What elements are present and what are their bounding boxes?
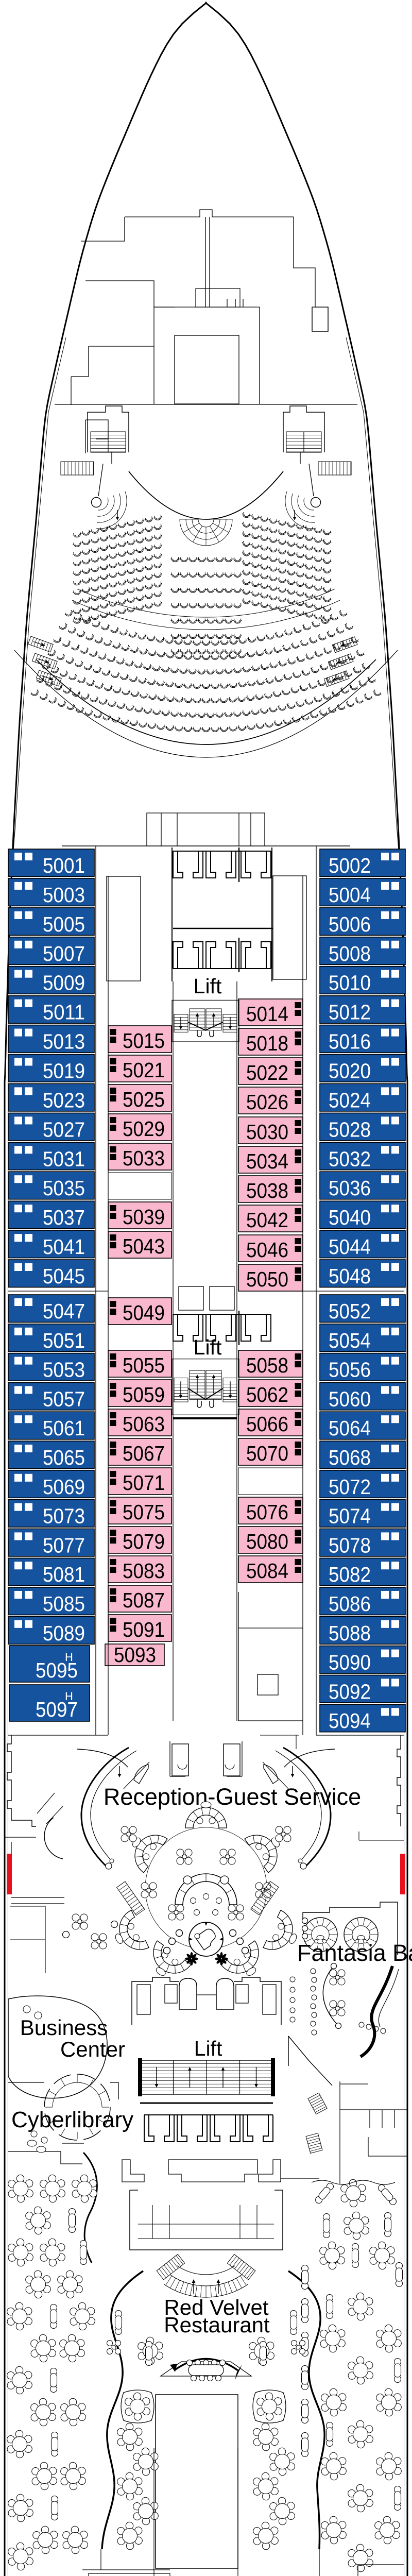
svg-text:5045: 5045 — [43, 1264, 85, 1288]
svg-text:5007: 5007 — [43, 942, 85, 965]
svg-text:5076: 5076 — [246, 1500, 288, 1524]
svg-text:Fantasia Bar: Fantasia Bar — [297, 1940, 412, 1966]
svg-text:5083: 5083 — [123, 1559, 165, 1583]
svg-text:5028: 5028 — [329, 1117, 371, 1141]
svg-text:5073: 5073 — [43, 1504, 85, 1528]
svg-text:5013: 5013 — [43, 1030, 85, 1054]
svg-text:5001: 5001 — [43, 854, 85, 877]
svg-text:5086: 5086 — [329, 1592, 371, 1616]
svg-text:5021: 5021 — [123, 1058, 165, 1082]
svg-text:5092: 5092 — [329, 1680, 371, 1703]
svg-text:5009: 5009 — [43, 971, 85, 995]
svg-text:5002: 5002 — [329, 854, 371, 877]
svg-text:5030: 5030 — [246, 1120, 288, 1144]
svg-text:5087: 5087 — [123, 1588, 165, 1612]
svg-text:Reception-Guest Service: Reception-Guest Service — [104, 1784, 361, 1810]
svg-text:5080: 5080 — [246, 1530, 288, 1553]
svg-text:5050: 5050 — [246, 1267, 288, 1291]
svg-text:5089: 5089 — [43, 1621, 85, 1645]
svg-text:5078: 5078 — [329, 1533, 371, 1557]
svg-text:5025: 5025 — [123, 1088, 165, 1111]
svg-text:5056: 5056 — [329, 1358, 371, 1382]
svg-text:5003: 5003 — [43, 883, 85, 907]
svg-text:5042: 5042 — [246, 1208, 288, 1232]
svg-text:5051: 5051 — [43, 1329, 85, 1352]
svg-text:5058: 5058 — [246, 1353, 288, 1377]
svg-text:5063: 5063 — [123, 1412, 165, 1436]
svg-text:5094: 5094 — [329, 1709, 371, 1733]
svg-text:5061: 5061 — [43, 1416, 85, 1440]
svg-text:5088: 5088 — [329, 1621, 371, 1645]
svg-text:5049: 5049 — [123, 1301, 165, 1325]
svg-text:5071: 5071 — [123, 1471, 165, 1495]
svg-text:5008: 5008 — [329, 942, 371, 965]
svg-text:5084: 5084 — [246, 1559, 288, 1583]
svg-text:5031: 5031 — [43, 1147, 85, 1171]
svg-text:5039: 5039 — [123, 1205, 165, 1229]
svg-text:5059: 5059 — [123, 1383, 165, 1406]
svg-text:5027: 5027 — [43, 1117, 85, 1141]
svg-text:Lift: Lift — [194, 1335, 222, 1359]
svg-text:5040: 5040 — [329, 1206, 371, 1229]
svg-text:5062: 5062 — [246, 1383, 288, 1406]
svg-text:5052: 5052 — [329, 1299, 371, 1323]
svg-text:5077: 5077 — [43, 1533, 85, 1557]
svg-text:5020: 5020 — [329, 1059, 371, 1083]
svg-text:Center: Center — [60, 2037, 125, 2061]
svg-text:Cyberlibrary: Cyberlibrary — [11, 2107, 133, 2132]
svg-text:5012: 5012 — [329, 1001, 371, 1024]
svg-text:5035: 5035 — [43, 1176, 85, 1200]
svg-text:5057: 5057 — [43, 1387, 85, 1411]
svg-text:5032: 5032 — [329, 1147, 371, 1171]
svg-text:5019: 5019 — [43, 1059, 85, 1083]
svg-text:5006: 5006 — [329, 912, 371, 936]
svg-text:5011: 5011 — [43, 1001, 85, 1024]
svg-text:5082: 5082 — [329, 1563, 371, 1586]
svg-text:5038: 5038 — [246, 1179, 288, 1202]
svg-text:5014: 5014 — [246, 1002, 288, 1026]
svg-text:5047: 5047 — [43, 1299, 85, 1323]
svg-text:Business: Business — [20, 2015, 108, 2040]
svg-text:5022: 5022 — [246, 1061, 288, 1084]
svg-text:5005: 5005 — [43, 912, 85, 936]
svg-text:5079: 5079 — [123, 1530, 165, 1553]
svg-text:5074: 5074 — [329, 1504, 371, 1528]
svg-text:5070: 5070 — [246, 1442, 288, 1465]
svg-text:5016: 5016 — [329, 1030, 371, 1054]
svg-text:5033: 5033 — [123, 1146, 165, 1170]
svg-text:Restaurant: Restaurant — [164, 2313, 270, 2337]
svg-text:5064: 5064 — [329, 1416, 371, 1440]
svg-text:5015: 5015 — [123, 1029, 165, 1053]
svg-text:5068: 5068 — [329, 1446, 371, 1469]
svg-text:5010: 5010 — [329, 971, 371, 995]
svg-text:5091: 5091 — [123, 1618, 165, 1641]
svg-text:5004: 5004 — [329, 883, 371, 907]
svg-text:5043: 5043 — [123, 1234, 165, 1258]
svg-text:5044: 5044 — [329, 1235, 371, 1259]
svg-text:5066: 5066 — [246, 1412, 288, 1436]
svg-text:5081: 5081 — [43, 1563, 85, 1586]
svg-text:5046: 5046 — [246, 1238, 288, 1262]
svg-text:5085: 5085 — [43, 1592, 85, 1616]
svg-text:5029: 5029 — [123, 1117, 165, 1141]
svg-text:5041: 5041 — [43, 1235, 85, 1259]
svg-text:5048: 5048 — [329, 1264, 371, 1288]
svg-text:5093: 5093 — [114, 1643, 156, 1667]
svg-text:Lift: Lift — [194, 2037, 222, 2060]
svg-text:5075: 5075 — [123, 1500, 165, 1524]
svg-text:5069: 5069 — [43, 1475, 85, 1499]
svg-text:5037: 5037 — [43, 1206, 85, 1229]
svg-text:5023: 5023 — [43, 1088, 85, 1112]
svg-text:5053: 5053 — [43, 1358, 85, 1382]
svg-text:5026: 5026 — [246, 1090, 288, 1114]
svg-text:5055: 5055 — [123, 1353, 165, 1377]
svg-text:5054: 5054 — [329, 1329, 371, 1352]
svg-text:5095: 5095 — [36, 1658, 78, 1682]
svg-text:5034: 5034 — [246, 1149, 288, 1173]
svg-text:5018: 5018 — [246, 1031, 288, 1055]
svg-text:5024: 5024 — [329, 1088, 371, 1112]
svg-text:5036: 5036 — [329, 1176, 371, 1200]
svg-text:5067: 5067 — [123, 1442, 165, 1465]
svg-text:5060: 5060 — [329, 1387, 371, 1411]
svg-text:Lift: Lift — [194, 974, 222, 998]
svg-text:5072: 5072 — [329, 1475, 371, 1499]
svg-text:5065: 5065 — [43, 1446, 85, 1469]
svg-text:5097: 5097 — [36, 1698, 78, 1721]
svg-text:5090: 5090 — [329, 1651, 371, 1674]
